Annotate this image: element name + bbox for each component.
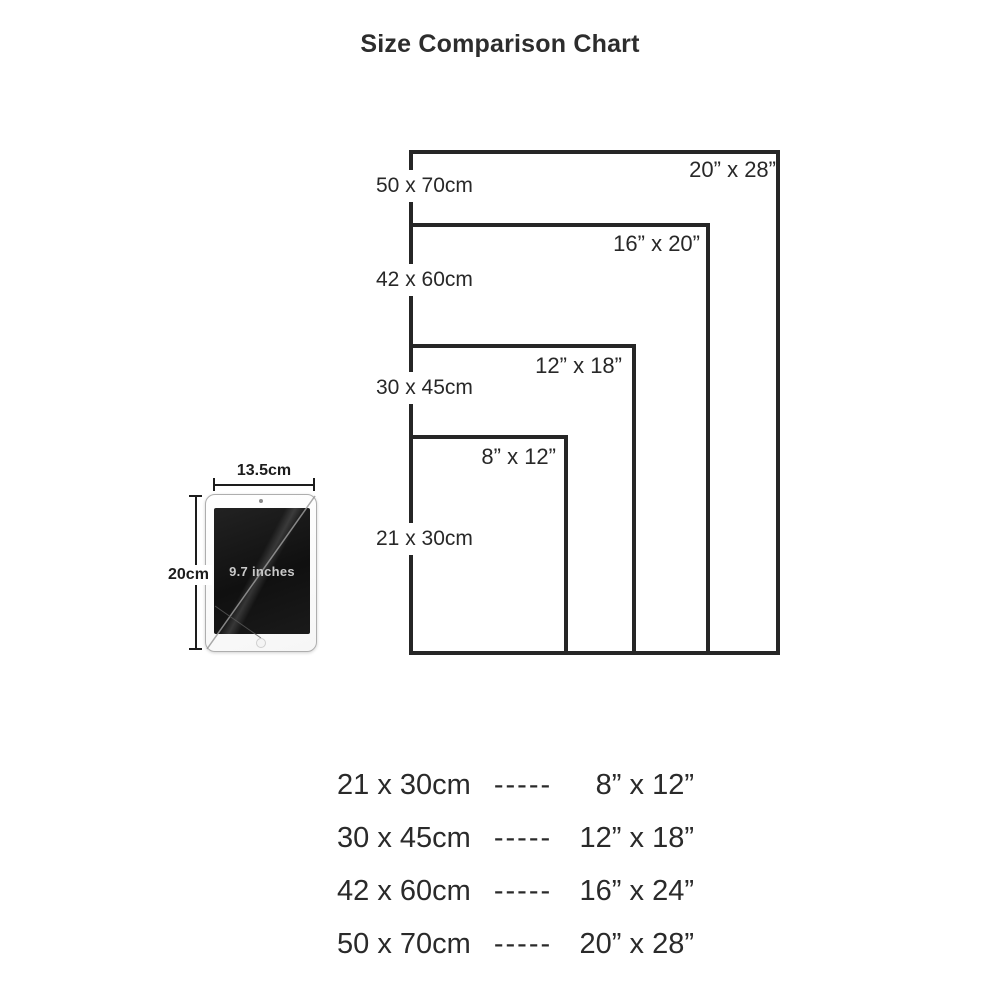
legend-row-21x30: 21 x 30cm ----- 8” x 12” xyxy=(337,759,694,812)
legend-row-50x70: 50 x 70cm ----- 20” x 28” xyxy=(337,918,694,971)
legend-cm-value: 30 x 45cm xyxy=(337,812,484,865)
label-in-12x18: 12” x 18” xyxy=(535,353,622,379)
legend-cm-value: 50 x 70cm xyxy=(337,918,484,971)
width-measure-line xyxy=(214,484,314,486)
width-measure-tick-right xyxy=(313,478,315,491)
legend-cm-value: 21 x 30cm xyxy=(337,759,484,812)
tablet-width-label: 13.5cm xyxy=(214,462,314,480)
legend-row-42x60: 42 x 60cm ----- 16” x 24” xyxy=(337,865,694,918)
size-legend: 21 x 30cm ----- 8” x 12” 30 x 45cm -----… xyxy=(337,759,694,971)
height-measure-tick-bottom xyxy=(189,648,202,650)
label-in-8x12: 8” x 12” xyxy=(481,444,556,470)
legend-dash-separator: ----- xyxy=(484,759,562,812)
tablet-home-button xyxy=(256,638,266,648)
tablet-camera-dot xyxy=(259,499,263,503)
legend-inch-value: 8” x 12” xyxy=(562,759,694,812)
label-cm-50x70: 50 x 70cm xyxy=(373,170,476,202)
label-in-16x20: 16” x 20” xyxy=(613,231,700,257)
legend-inch-value: 20” x 28” xyxy=(562,918,694,971)
legend-dash-separator: ----- xyxy=(484,918,562,971)
legend-row-30x45: 30 x 45cm ----- 12” x 18” xyxy=(337,812,694,865)
legend-inch-value: 12” x 18” xyxy=(562,812,694,865)
legend-cm-value: 42 x 60cm xyxy=(337,865,484,918)
legend-inch-value: 16” x 24” xyxy=(562,865,694,918)
width-measure-tick-left xyxy=(213,478,215,491)
tablet-screen-size-label: 9.7 inches xyxy=(214,564,310,579)
label-cm-42x60: 42 x 60cm xyxy=(373,264,476,296)
legend-dash-separator: ----- xyxy=(484,865,562,918)
label-cm-30x45: 30 x 45cm xyxy=(373,372,476,404)
label-cm-21x30: 21 x 30cm xyxy=(373,523,476,555)
legend-dash-separator: ----- xyxy=(484,812,562,865)
size-comparison-page: Size Comparison Chart 50 x 70cm 42 x 60c… xyxy=(0,0,1000,1000)
page-title: Size Comparison Chart xyxy=(0,30,1000,59)
tablet-height-label: 20cm xyxy=(165,565,212,585)
height-measure-tick-top xyxy=(189,495,202,497)
label-in-20x28: 20” x 28” xyxy=(689,157,776,183)
